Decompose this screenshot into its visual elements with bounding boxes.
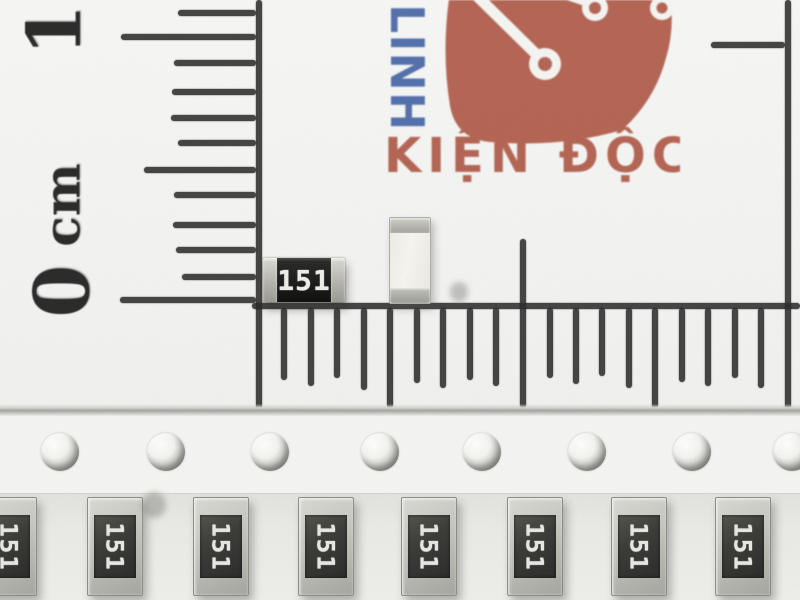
resistor-body: 151 [408,515,450,578]
capacitor-terminal [390,218,430,233]
resistor-end-cap [263,258,277,302]
ruler-mm-tick [173,222,256,228]
logo-vertical-text: LINH [380,4,434,131]
ruler-mm-tick [308,308,314,386]
ruler-mm-tick [758,308,764,388]
ruler-mm-tick [178,140,256,146]
ruler-mm-tick [573,308,579,384]
ruler-mm-tick [361,308,367,390]
resistor-body: 151 [722,515,764,578]
ruler-mm-tick [440,308,446,388]
resistor-body: 151 [514,515,556,578]
ruler-label-0-text: 0 [24,265,100,318]
taped-smd-resistor: 151 [401,497,457,596]
resistor-body: 151 [94,515,136,578]
ruler-mm-tick [176,247,256,253]
sprocket-hole [673,433,711,471]
ruler-mm-tick [387,308,393,408]
photo-canvas: LINH KIỆN ĐỘC 1 0 cm 151 151151151151151… [0,0,800,600]
sprocket-hole [568,433,606,471]
taped-smd-resistor: 151 [298,497,354,596]
ruler-mm-tick [178,10,256,16]
sprocket-hole [251,433,289,471]
ruler-label-1cm: 1 [23,0,87,105]
ruler-mm-tick [281,308,287,380]
ruler-mm-tick [144,167,256,173]
sprocket-hole [41,433,79,471]
sprocket-hole [361,433,399,471]
resistor-marking: 151 [101,522,129,571]
ruler-unit-text: cm [37,163,87,264]
resistor-body: 151 [0,515,30,578]
ruler-mm-tick [334,308,340,378]
right-ruler-line [785,0,791,410]
resistor-body: 151 [618,515,660,578]
ruler-mm-tick [182,274,256,280]
sprocket-hole [147,433,185,471]
taped-smd-resistor: 151 [193,497,249,596]
taped-smd-resistor: 151 [0,497,37,596]
smudge [142,492,166,518]
taped-smd-resistor: 151 [611,497,667,596]
resistor-marking: 151 [207,522,235,571]
ruler-mm-tick [652,308,658,408]
sprocket-hole [463,433,501,471]
resistor-marking: 151 [312,522,340,571]
ruler-mm-tick [414,308,420,383]
capacitor-terminal [390,288,430,303]
ruler-mm-tick [547,308,553,378]
ruler-mm-tick [732,308,738,378]
loose-white-chip-component [389,217,431,304]
ruler-mm-tick [172,89,256,95]
ruler-mm-tick [120,297,256,303]
vertical-ruler-line [256,0,262,410]
resistor-marking: 151 [625,522,653,571]
ruler-mm-tick [121,34,256,40]
taped-smd-resistor: 151 [507,497,563,596]
resistor-marking: 151 [521,522,549,571]
ruler-mm-tick [174,192,256,198]
ruler-mm-tick [679,308,685,382]
ruler-mm-tick [171,115,256,121]
ruler-mm-tick [599,308,605,376]
taped-smd-resistor: 151 [715,497,771,596]
ruler-mm-tick [520,239,526,408]
resistor-body: 151 [305,515,347,578]
ruler-mm-tick [467,308,473,380]
smudge [450,282,468,302]
ruler-label-0cm: 0 cm [25,146,100,336]
ruler-mm-tick [493,308,499,386]
logo-main-text: KIỆN ĐỘC [384,127,680,184]
ruler-label-1-text: 1 [12,4,98,56]
ruler-mm-tick [705,308,711,386]
resistor-marking: 151 [277,264,331,297]
right-ruler-tick [711,42,785,48]
resistor-body: 151 [200,515,242,578]
taped-smd-resistor: 151 [87,497,143,596]
loose-smd-resistor: 151 [263,258,345,302]
resistor-marking: 151 [729,522,757,571]
resistor-marking: 151 [0,522,23,571]
resistor-marking: 151 [415,522,443,571]
ruler-mm-tick [174,60,256,66]
resistor-end-cap [331,258,345,302]
ruler-mm-tick [626,308,632,388]
vendor-logo: LINH KIỆN ĐỘC [370,0,680,195]
